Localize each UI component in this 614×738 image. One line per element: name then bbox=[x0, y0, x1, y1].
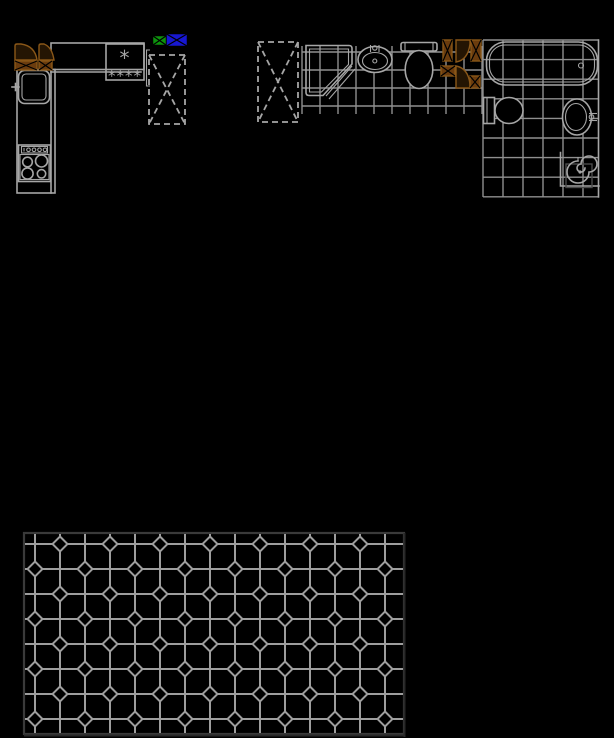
kitchen-counter-top-arm bbox=[51, 43, 144, 70]
tile-diamond bbox=[128, 612, 143, 627]
tile-diamond bbox=[178, 612, 193, 627]
tile-diamond bbox=[103, 687, 118, 702]
tile-diamond bbox=[28, 562, 43, 577]
hob-unit[interactable]: * **** bbox=[106, 44, 144, 85]
burner bbox=[22, 168, 33, 179]
tile-diamond bbox=[103, 587, 118, 602]
tile-diamond bbox=[253, 637, 268, 652]
toilet-middle[interactable] bbox=[401, 43, 437, 89]
tile-diamond bbox=[203, 537, 218, 552]
tile-diamond bbox=[378, 612, 393, 627]
tile-diamond bbox=[378, 712, 393, 727]
toilet-bowl bbox=[405, 51, 433, 89]
tile-diamond bbox=[328, 562, 343, 577]
tile-diamond bbox=[228, 562, 243, 577]
stove-knob bbox=[32, 148, 36, 152]
tile-diamond bbox=[153, 687, 168, 702]
tile-diamond bbox=[153, 537, 168, 552]
tile-diamond bbox=[353, 537, 368, 552]
tile-diamond bbox=[178, 662, 193, 677]
tile-diamond bbox=[53, 587, 68, 602]
tile-diamond bbox=[53, 687, 68, 702]
tile-diamond bbox=[203, 687, 218, 702]
washbasin-right[interactable] bbox=[563, 99, 598, 135]
toilet-bowl bbox=[495, 98, 523, 124]
door-symbols-cluster[interactable] bbox=[441, 40, 481, 88]
floor-tile-pattern[interactable] bbox=[24, 533, 405, 737]
tile-diamond bbox=[103, 537, 118, 552]
tile-pattern-border bbox=[24, 533, 404, 734]
sink-inner bbox=[22, 74, 46, 100]
tile-diamond bbox=[303, 637, 318, 652]
tile-diamond bbox=[178, 562, 193, 577]
tile-diamond bbox=[253, 587, 268, 602]
tile-diamond bbox=[128, 662, 143, 677]
door-arc bbox=[456, 40, 470, 62]
tile-diamond bbox=[78, 562, 93, 577]
toilet-cistern bbox=[484, 98, 495, 124]
tile-diamond bbox=[353, 587, 368, 602]
burner bbox=[23, 157, 33, 167]
tile-diamond bbox=[153, 637, 168, 652]
green-tag[interactable] bbox=[153, 36, 166, 45]
tile-diamond bbox=[128, 712, 143, 727]
stove-knob bbox=[38, 148, 42, 152]
tile-diamond bbox=[203, 587, 218, 602]
tile-diamond bbox=[128, 562, 143, 577]
basin-bowl bbox=[563, 99, 592, 135]
stove[interactable] bbox=[19, 145, 51, 182]
tile-diamond bbox=[153, 587, 168, 602]
burner bbox=[37, 170, 45, 178]
hob-burner-row-symbol: **** bbox=[108, 67, 142, 85]
tile-diamond bbox=[228, 662, 243, 677]
dashed-appliance-symbols[interactable] bbox=[149, 42, 298, 124]
tile-diamond bbox=[78, 612, 93, 627]
shower-tray[interactable] bbox=[306, 46, 355, 100]
tile-diamond bbox=[178, 712, 193, 727]
cabinet-door-arc bbox=[15, 44, 37, 60]
tile-diamond bbox=[53, 537, 68, 552]
tile-diamond bbox=[378, 562, 393, 577]
tile-diamond bbox=[328, 612, 343, 627]
tile-diamond bbox=[353, 637, 368, 652]
tile-diamond bbox=[78, 712, 93, 727]
tile-diamond bbox=[328, 662, 343, 677]
tile-diamond bbox=[228, 612, 243, 627]
tile-diamond bbox=[253, 537, 268, 552]
tile-diamond bbox=[353, 687, 368, 702]
blue-tag[interactable] bbox=[167, 34, 188, 46]
toilet-right[interactable] bbox=[484, 98, 524, 124]
tile-diamond bbox=[303, 537, 318, 552]
tile-diamond bbox=[103, 637, 118, 652]
tile-diamond bbox=[28, 612, 43, 627]
wall-cabinet-symbols[interactable] bbox=[15, 44, 54, 70]
tile-diamond bbox=[278, 612, 293, 627]
tile-diamond bbox=[303, 687, 318, 702]
tile-diamond bbox=[28, 712, 43, 727]
tile-diamond bbox=[28, 662, 43, 677]
washbasin-middle[interactable] bbox=[358, 45, 392, 73]
stove-knob bbox=[43, 148, 47, 152]
stove-knob bbox=[27, 148, 31, 152]
tile-diamond bbox=[53, 637, 68, 652]
tile-pattern-shadow bbox=[24, 533, 405, 737]
tile-diamond bbox=[253, 687, 268, 702]
spiral-center bbox=[578, 170, 581, 173]
kitchen-block[interactable]: * **** bbox=[12, 34, 187, 193]
cad-drawing-canvas[interactable]: * **** bbox=[0, 0, 614, 738]
tile-diamond bbox=[278, 712, 293, 727]
tile-diamond bbox=[78, 662, 93, 677]
burner bbox=[36, 155, 48, 167]
tile-diamond bbox=[228, 712, 243, 727]
tile-diamond bbox=[278, 662, 293, 677]
tile-diamond bbox=[278, 562, 293, 577]
tile-diamond bbox=[303, 587, 318, 602]
tile-diamond bbox=[328, 712, 343, 727]
tile-diamond bbox=[203, 637, 218, 652]
tile-diamond bbox=[378, 662, 393, 677]
